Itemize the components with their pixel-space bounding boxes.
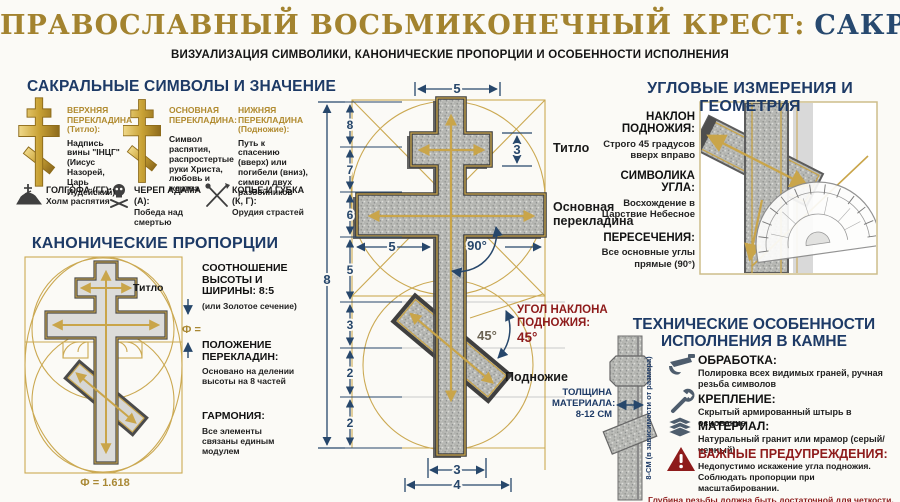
ruler-segment: 3 <box>347 318 354 332</box>
symbol-column-main-bar: ОСНОВНАЯ ПЕРЕКЛАДИНА: Символ распятия, р… <box>169 106 233 194</box>
thickness-label-line3: 8-12 СМ <box>552 409 612 420</box>
angle-foot: 45° <box>477 328 497 343</box>
polish-tool-icon <box>669 354 695 375</box>
angles-item-intersections: ПЕРЕСЕЧЕНИЯ: Все основные углы прямые (9… <box>600 232 695 270</box>
angles-item-symbolism: СИМВОЛИКА УГЛА: Восхождение в Царствие Н… <box>600 170 695 220</box>
glossary-term: ГОЛГОФА (ГГ): <box>46 185 118 196</box>
proportions-item-ratio: СООТНОШЕНИЕ ВЫСОТЫ И ШИРИНЫ: 8:5 (или Зо… <box>202 263 298 311</box>
technical-heading: ТЕХНИЧЕСКИЕ ОСОБЕННОСТИ ИСПОЛНЕНИЯ В КАМ… <box>618 316 890 351</box>
proportions-item-body: Все элементы связаны единым модулем <box>202 426 298 456</box>
angles-item-body: Восхождение в Царствие Небесное <box>600 198 695 220</box>
label-foot: Подножие <box>505 370 568 384</box>
angles-item-body: Все основные углы прямые (90°) <box>600 247 695 269</box>
prop-phi-eq: Ф = <box>182 324 201 336</box>
page-title-gold: ПРАВОСЛАВНЫЙ ВОСЬМИКОНЕЧНЫЙ КРЕСТ: <box>0 10 805 41</box>
ruler-segment: 2 <box>347 416 354 430</box>
proportions-item-position: ПОЛОЖЕНИЕ ПЕРЕКЛАДИН: Основано на делени… <box>202 340 298 386</box>
tech-warning-block: ВАЖНЫЕ ПРЕДУПРЕЖДЕНИЯ: Недопустимо искаж… <box>698 448 898 502</box>
ruler-segment: 2 <box>347 366 354 380</box>
page-title: ПРАВОСЛАВНЫЙ ВОСЬМИКОНЕЧНЫЙ КРЕСТ:САКРАЛ… <box>0 10 900 41</box>
ruler-segment: 7 <box>347 163 354 177</box>
layers-icon <box>668 417 692 437</box>
label-titlo: Титло <box>553 141 590 155</box>
symbol-column-title: НИЖНЯЯ ПЕРЕКЛАДИНА (Подножие): <box>238 106 308 135</box>
proportions-heading: КАНОНИЧЕСКИЕ ПРОПОРЦИИ <box>20 235 290 253</box>
proportions-item-title: ПОЛОЖЕНИЕ ПЕРЕКЛАДИН: <box>202 340 298 363</box>
wrench-icon <box>673 389 694 411</box>
proportions-item-body: (или Золотое сечение) <box>202 301 298 311</box>
angles-item-title: ПЕРЕСЕЧЕНИЯ: <box>600 232 695 244</box>
symbol-column-title: ВЕРХНЯЯ ПЕРЕКЛАДИНА (Титло): <box>67 106 127 135</box>
angles-item-title: НАКЛОН ПОДНОЖИЯ: <box>600 111 695 136</box>
dim-titlo-height: 3 <box>513 142 520 157</box>
phi-value: Ф = 1.618 <box>55 477 155 489</box>
glossary-desc: Победа над смертью <box>134 207 216 227</box>
foot-angle-value: 45° <box>517 330 537 345</box>
glossary-desc: Холм распятия <box>46 196 118 206</box>
main-cross-diagram: 5 3 8 8 7 6 5 3 2 2 5 90° 3 4 45° Титло … <box>318 81 635 492</box>
ruler-segment: 8 <box>347 118 354 132</box>
infographic-canvas: Титло Ф = <box>0 0 900 502</box>
proportions-item-harmony: ГАРМОНИЯ: Все элементы связаны единым мо… <box>202 411 298 456</box>
proportions-item-body: Основано на делении высоты на 8 частей <box>202 366 298 386</box>
foot-angle-callout: ПОДНОЖИЯ: <box>517 317 590 329</box>
dim-bottom-inner: 3 <box>453 462 460 477</box>
thickness-side-note: 8-СМ (в зависимости от размера) <box>644 344 653 492</box>
proportions-diagram: Титло Ф = <box>25 257 201 473</box>
tech-item-title: КРЕПЛЕНИЕ: <box>698 393 898 406</box>
thickness-label-line1: ТОЛЩИНА <box>552 387 612 398</box>
glossary-skull: ЧЕРЕП АДАМА (А): Победа над смертью <box>134 185 216 227</box>
symbol-column-lower-bar: НИЖНЯЯ ПЕРЕКЛАДИНА (Подножие): Путь к сп… <box>238 106 308 198</box>
angle-panel <box>693 102 881 274</box>
angles-item-slope: НАКЛОН ПОДНОЖИЯ: Строго 45 градусов ввер… <box>600 111 695 161</box>
warning-line: Недопустимо искажение угла подножия. <box>698 461 898 472</box>
thickness-label: ТОЛЩИНА МАТЕРИАЛА: 8-12 СМ <box>552 387 612 421</box>
ruler-segment: 5 <box>347 263 354 277</box>
tech-item-title: ОБРАБОТКА: <box>698 354 898 367</box>
proportions-item-title: ГАРМОНИЯ: <box>202 411 298 423</box>
warning-line: Соблюдать пропорции при масштабировании. <box>698 472 898 494</box>
dim-bottom-outer: 4 <box>453 477 461 492</box>
tech-item-title: МАТЕРИАЛ: <box>698 420 898 433</box>
symbol-column-title: ОСНОВНАЯ ПЕРЕКЛАДИНА: <box>169 106 233 125</box>
prop-titlo-label: Титло <box>133 282 163 294</box>
technical-heading-line1: ТЕХНИЧЕСКИЕ ОСОБЕННОСТИ <box>618 316 890 333</box>
warning-triangle-icon <box>667 447 695 471</box>
tech-item-processing: ОБРАБОТКА: Полировка всех видимых граней… <box>698 354 898 390</box>
glossary-spear-sponge: КОПЬЕ И ГУБКА (К, Г): Орудия страстей <box>232 185 312 217</box>
technical-heading-line2: ИСПОЛНЕНИЯ В КАМНЕ <box>618 333 890 350</box>
angles-item-title: СИМВОЛИКА УГЛА: <box>600 170 695 195</box>
symbols-heading: САКРАЛЬНЫЕ СИМВОЛЫ И ЗНАЧЕНИЕ <box>27 78 336 96</box>
glossary-golgotha: ГОЛГОФА (ГГ): Холм распятия <box>46 185 118 206</box>
dim-total-height: 8 <box>323 272 330 287</box>
glossary-desc: Орудия страстей <box>232 207 312 217</box>
ruler-segment: 6 <box>347 208 354 222</box>
warning-line-critical: Глубина резьбы должна быть достаточной д… <box>648 495 898 502</box>
gold-cross-icon <box>19 98 59 186</box>
foot-angle-callout: УГОЛ НАКЛОНА <box>517 304 608 316</box>
proportions-item-title: СООТНОШЕНИЕ ВЫСОТЫ И ШИРИНЫ: 8:5 <box>202 263 298 298</box>
thickness-label-line2: МАТЕРИАЛА: <box>552 398 612 409</box>
dim-top-width: 5 <box>453 81 460 96</box>
symbol-column-upper-bar: ВЕРХНЯЯ ПЕРЕКЛАДИНА (Титло): Надпись вин… <box>67 106 127 198</box>
dim-mid-width: 5 <box>388 239 395 254</box>
warning-title: ВАЖНЫЕ ПРЕДУПРЕЖДЕНИЯ: <box>698 448 898 461</box>
glossary-term: КОПЬЕ И ГУБКА (К, Г): <box>232 185 312 207</box>
angle-main: 90° <box>467 238 487 253</box>
page-subtitle: ВИЗУАЛИЗАЦИЯ СИМВОЛИКИ, КАНОНИЧЕСКИЕ ПРО… <box>0 49 900 61</box>
glossary-term: ЧЕРЕП АДАМА (А): <box>134 185 216 207</box>
angles-item-body: Строго 45 градусов вверх вправо <box>600 139 695 161</box>
golgotha-icon <box>17 184 41 204</box>
page-title-navy: САКРАЛЬНАЯ ГЕОМЕТРИЯ <box>814 10 900 41</box>
tech-item-body: Полировка всех видимых граней, ручная ре… <box>698 368 898 390</box>
gold-cross-icon <box>123 100 161 183</box>
